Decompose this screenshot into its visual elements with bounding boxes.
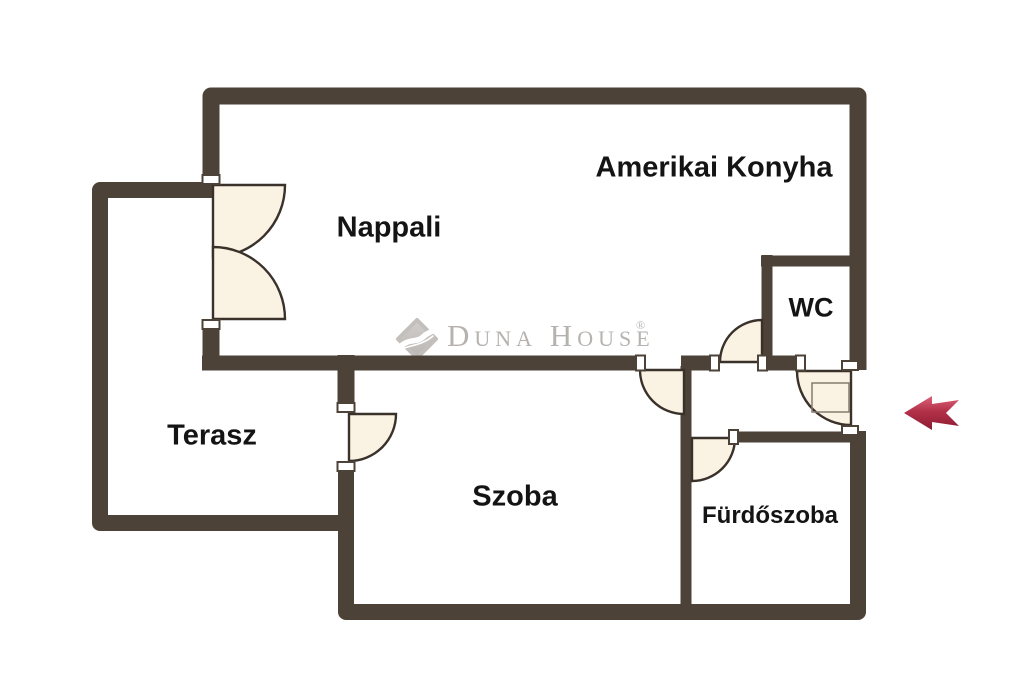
jamb-mark [636, 356, 645, 371]
door-terasz-szoba [349, 414, 396, 461]
door-wc [720, 320, 762, 362]
floorplan-canvas [0, 0, 1024, 688]
jamb-mark [710, 356, 719, 371]
jamb-mark [338, 403, 355, 412]
jamb-mark [842, 426, 858, 435]
room-label-wc: WC [789, 293, 834, 324]
door-double-leaf-bottom [213, 247, 285, 319]
room-label-amerikai-konyha: Amerikai Konyha [596, 152, 833, 185]
watermark-diamond-icon [398, 320, 436, 358]
room-label-terasz: Terasz [167, 420, 257, 453]
room-label-furdoszoba: Fürdőszoba [702, 502, 838, 530]
jamb-mark [203, 320, 220, 329]
jamb-mark [842, 361, 858, 370]
floorplan-page: Duna House ® [0, 0, 1024, 688]
jamb-mark [758, 356, 767, 371]
door-szoba [640, 370, 684, 414]
room-label-nappali: Nappali [337, 212, 442, 245]
entrance-arrow-icon [904, 396, 959, 430]
room-label-szoba: Szoba [472, 481, 557, 514]
jamb-mark [203, 175, 220, 184]
door-entrance [797, 371, 851, 425]
jamb-mark [796, 356, 805, 371]
door-double-leaf-top [213, 185, 285, 257]
jamb-mark [338, 462, 355, 471]
jamb-mark [729, 430, 738, 444]
